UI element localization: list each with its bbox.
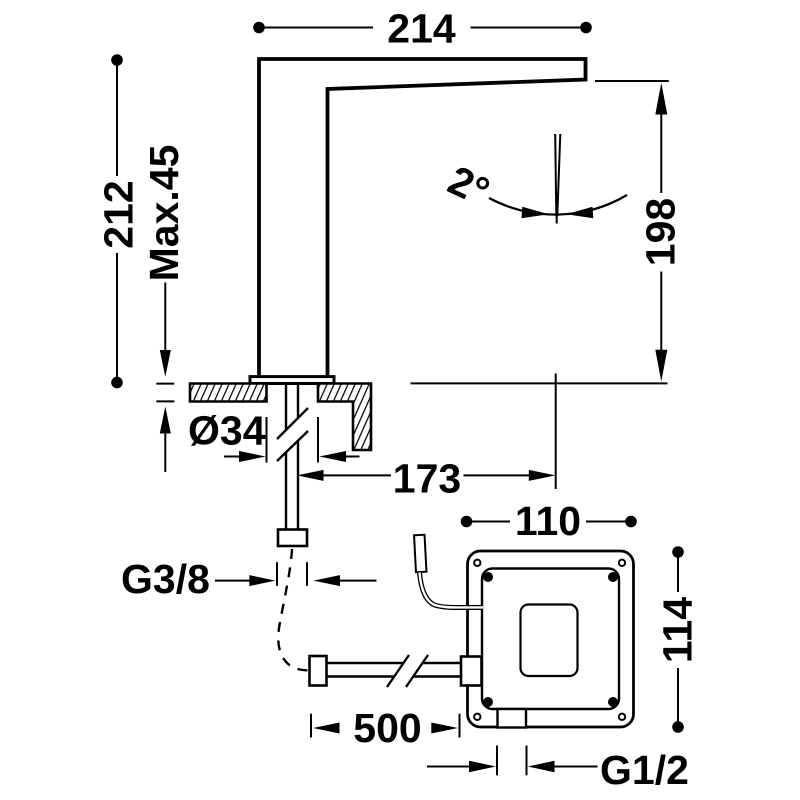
svg-text:212: 212 bbox=[96, 180, 142, 248]
svg-text:G3/8: G3/8 bbox=[121, 556, 210, 602]
svg-text:110: 110 bbox=[515, 498, 581, 544]
svg-text:500: 500 bbox=[353, 705, 421, 751]
svg-text:Max.45: Max.45 bbox=[141, 145, 187, 282]
svg-text:Ø34: Ø34 bbox=[188, 408, 266, 454]
svg-text:173: 173 bbox=[393, 456, 461, 502]
svg-text:114: 114 bbox=[654, 597, 700, 663]
svg-text:198: 198 bbox=[637, 198, 683, 266]
svg-text:G1/2: G1/2 bbox=[600, 747, 689, 793]
svg-text:214: 214 bbox=[387, 6, 456, 52]
